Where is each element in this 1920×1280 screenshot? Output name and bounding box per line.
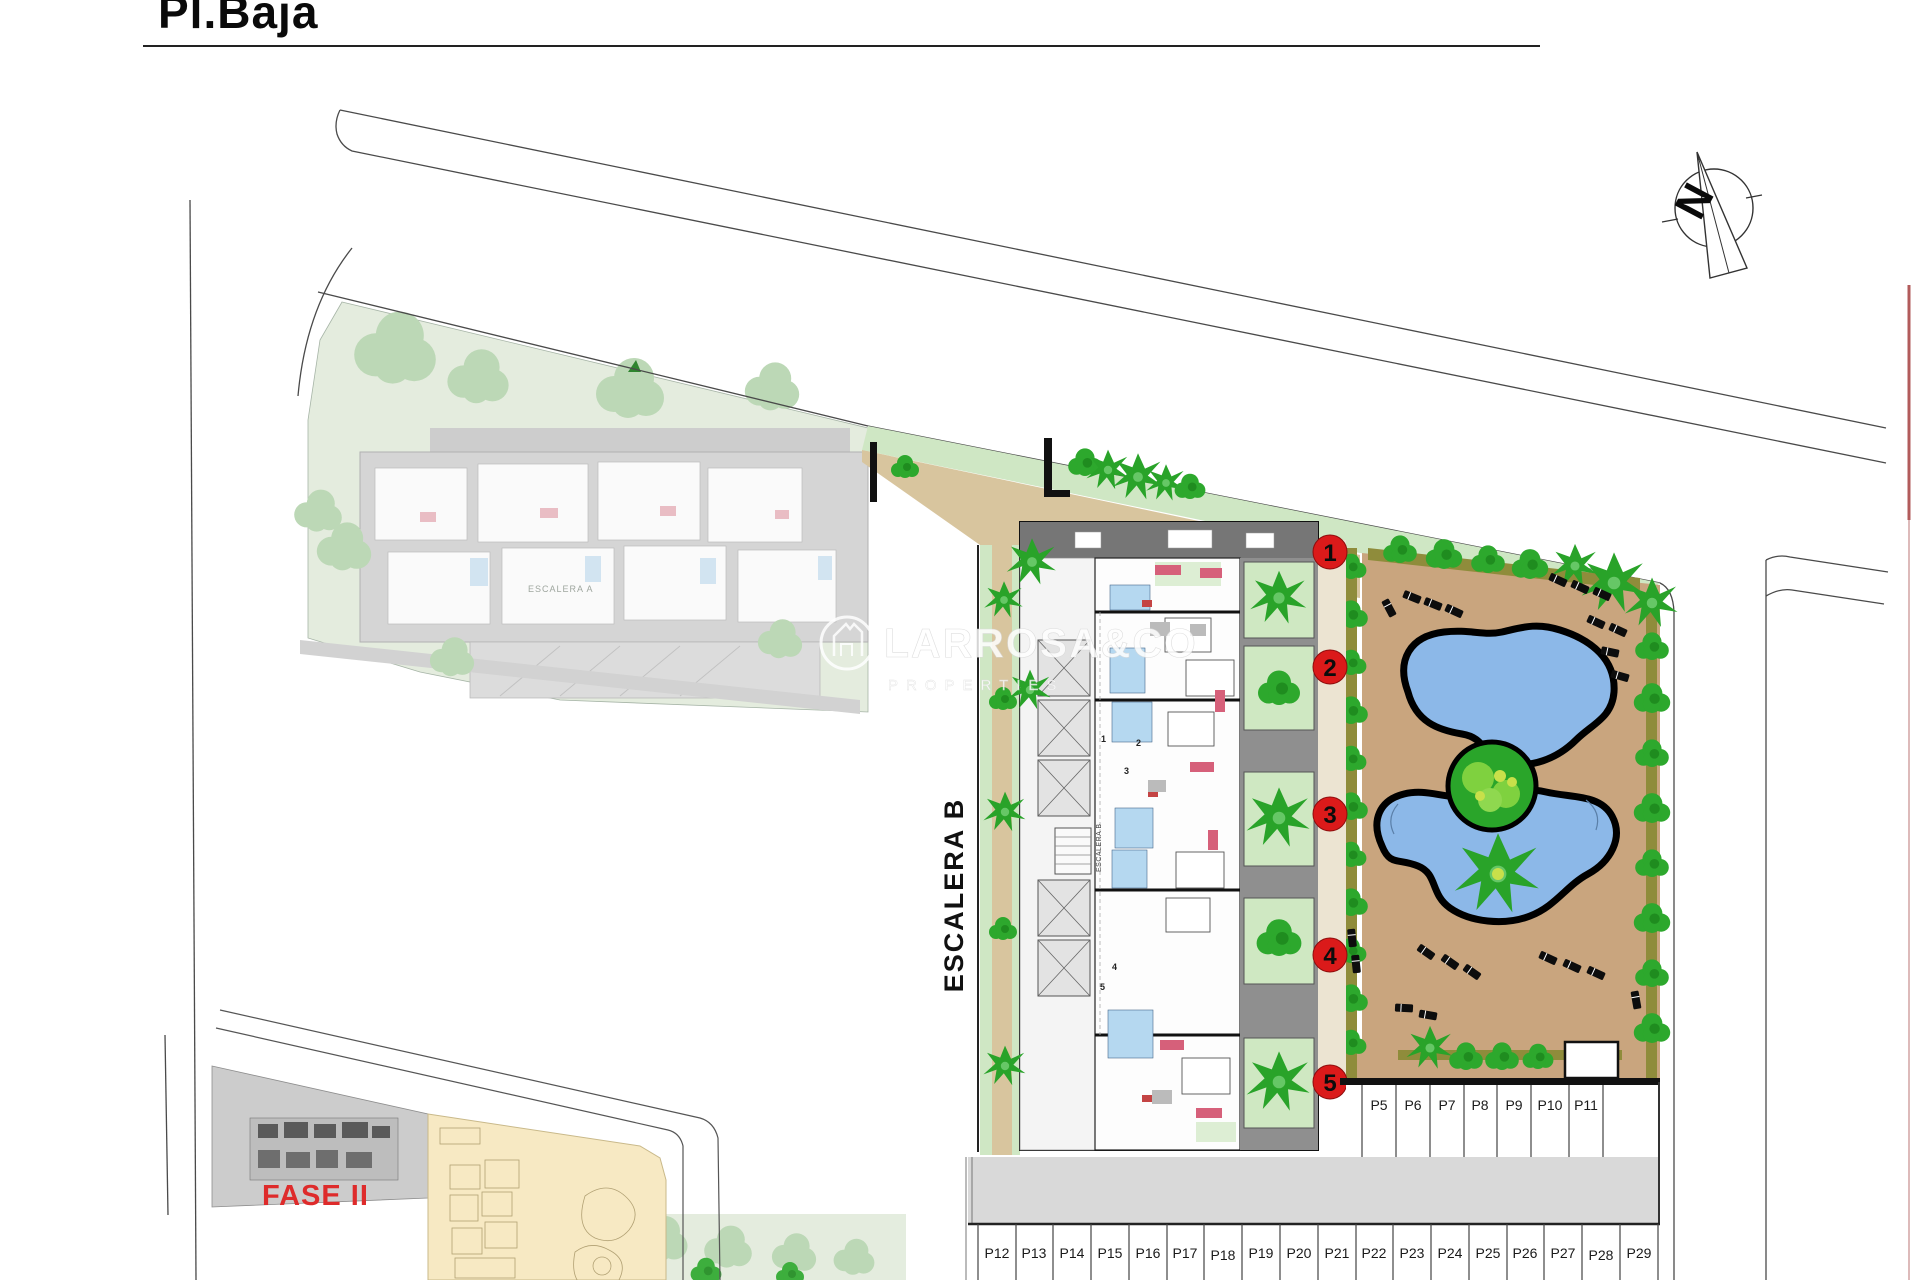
fase2-label: FASE II xyxy=(262,1180,369,1212)
parking-stall-label: P22 xyxy=(1362,1245,1387,1261)
door-number-1: 1 xyxy=(1101,734,1106,744)
page-title: Pl.Baja xyxy=(158,0,318,38)
parking-stall-label: P5 xyxy=(1370,1097,1387,1113)
parking-stall-label: P7 xyxy=(1438,1097,1455,1113)
pool-kiosk xyxy=(1565,1042,1618,1078)
unit-marker-3: 3 xyxy=(1313,797,1347,831)
escalera-b-inner-label: ESCALERA B xyxy=(1096,823,1103,872)
svg-text:1: 1 xyxy=(1323,540,1336,567)
parking-stall-label: P25 xyxy=(1476,1245,1501,1261)
door-number-3: 3 xyxy=(1124,766,1129,776)
site-plan-page: ESCALERA A xyxy=(0,0,1920,1280)
escalera-b-label: ESCALERA B xyxy=(939,798,969,993)
olive-strip-right xyxy=(1646,592,1657,1082)
mini-phase-map: FASE II xyxy=(212,1010,720,1280)
unit-marker-4: 4 xyxy=(1313,938,1347,972)
unit-marker-1: 1 xyxy=(1313,535,1347,569)
parking-stall-label: P10 xyxy=(1538,1097,1563,1113)
parking-stall-label: P29 xyxy=(1627,1245,1652,1261)
parking-stall-label: P8 xyxy=(1471,1097,1488,1113)
building-escalera-b: ESCALERA B 1 2 3 4 5 xyxy=(1020,522,1318,1150)
parking-stall-label: P20 xyxy=(1287,1245,1312,1261)
private-gardens xyxy=(1244,562,1314,1128)
right-street-corner-2 xyxy=(1766,590,1884,604)
door-number-2: 2 xyxy=(1136,738,1141,748)
parking-stall-label: P21 xyxy=(1325,1245,1350,1261)
parking-stall-label: P17 xyxy=(1173,1245,1198,1261)
parking-stall-label: P15 xyxy=(1098,1245,1123,1261)
unit-marker-2: 2 xyxy=(1313,650,1347,684)
north-compass: N xyxy=(1662,152,1762,278)
building-escalera-a: ESCALERA A xyxy=(300,428,868,714)
escalera-a-label: ESCALERA A xyxy=(528,584,594,594)
parking-stall-label: P14 xyxy=(1060,1245,1085,1261)
left-road-edge-2 xyxy=(165,1035,168,1215)
parking-stall-label: P28 xyxy=(1589,1247,1614,1263)
parking-row-right-topwall xyxy=(1340,1078,1660,1085)
parking-stall-label: P26 xyxy=(1513,1245,1538,1261)
parking-stall-label: P18 xyxy=(1211,1247,1236,1263)
svg-text:3: 3 xyxy=(1323,802,1336,829)
parking-stall-label: P19 xyxy=(1249,1245,1274,1261)
parking-row-right-bg xyxy=(1346,1085,1660,1157)
right-street-corner xyxy=(1766,556,1888,572)
fase1-zone xyxy=(428,1114,666,1280)
parking-stall-label: P24 xyxy=(1438,1245,1463,1261)
door-number-4: 4 xyxy=(1112,962,1117,972)
parking-row-right: P5 P6 P7 P8 P9 P10 P11 xyxy=(1340,1078,1660,1157)
parking-row-bottom: P12 P13 P14 P15 P16 P17 P18 P19 P20 P21 … xyxy=(968,1224,1660,1280)
parking-stall-label: P13 xyxy=(1022,1245,1047,1261)
door-number-5: 5 xyxy=(1100,982,1105,992)
watermark-tagline: PROPERTIES xyxy=(888,677,1064,694)
main-site: ESCALERA B 1 2 3 4 5 1 2 xyxy=(862,426,1678,1280)
svg-text:2: 2 xyxy=(1323,655,1336,682)
stairwell xyxy=(1055,828,1091,874)
svg-text:5: 5 xyxy=(1323,1070,1336,1097)
access-road xyxy=(968,1157,1660,1224)
parking-stall-label: P16 xyxy=(1136,1245,1161,1261)
fase2-mini-building xyxy=(250,1118,398,1180)
parking-stall-label: P9 xyxy=(1505,1097,1522,1113)
parking-stall-label: P27 xyxy=(1551,1245,1576,1261)
parking-stall-label: P11 xyxy=(1574,1097,1598,1113)
parking-stall-label: P12 xyxy=(985,1245,1010,1261)
pool-island-bush xyxy=(1448,742,1536,830)
left-road-edge xyxy=(190,200,196,1280)
parking-stall-label: P6 xyxy=(1404,1097,1421,1113)
svg-text:4: 4 xyxy=(1323,943,1337,970)
watermark-brand: LARROSA&CO xyxy=(884,620,1198,666)
site-plan-svg: ESCALERA A xyxy=(0,0,1920,1280)
parking-stall-label: P23 xyxy=(1400,1245,1425,1261)
